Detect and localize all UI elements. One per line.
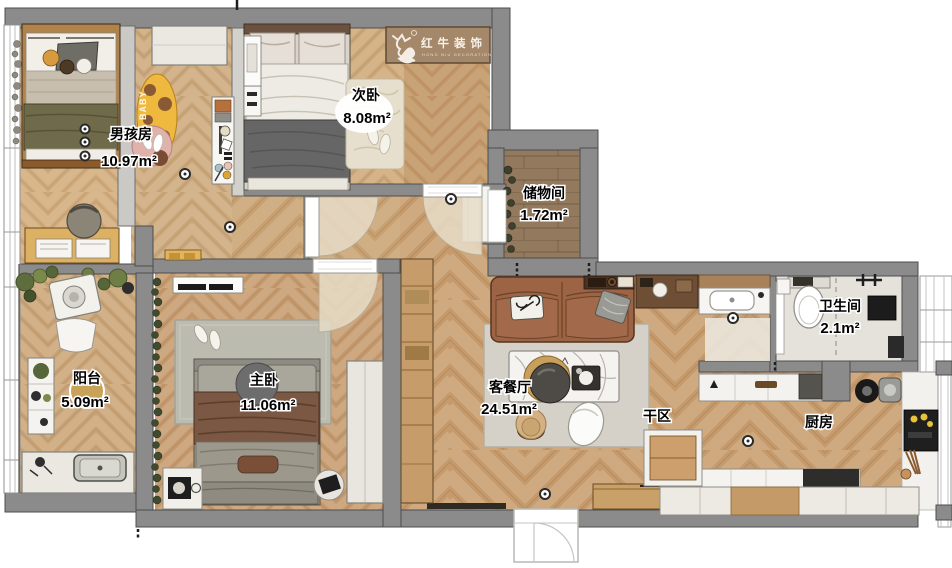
svg-text:阳台: 阳台 bbox=[73, 370, 101, 386]
svg-text:干区: 干区 bbox=[643, 408, 671, 424]
svg-text:10.97m²: 10.97m² bbox=[101, 153, 157, 170]
svg-text:2.1m²: 2.1m² bbox=[820, 320, 859, 337]
svg-text:主卧: 主卧 bbox=[250, 372, 278, 388]
svg-text:11.06m²: 11.06m² bbox=[240, 397, 295, 414]
svg-text:储物间: 储物间 bbox=[522, 185, 565, 201]
svg-text:BABY: BABY bbox=[138, 90, 148, 120]
svg-text:卫生间: 卫生间 bbox=[819, 298, 861, 314]
svg-text:厨房: 厨房 bbox=[805, 414, 833, 430]
svg-text:HONG NIU DECORATION: HONG NIU DECORATION bbox=[422, 52, 492, 57]
svg-text:1.72m²: 1.72m² bbox=[520, 207, 568, 224]
svg-text:男孩房: 男孩房 bbox=[110, 126, 152, 142]
svg-text:次卧: 次卧 bbox=[352, 87, 380, 103]
svg-text:5.09m²: 5.09m² bbox=[61, 394, 109, 411]
svg-text:8.08m²: 8.08m² bbox=[343, 110, 391, 127]
svg-text:客餐厅: 客餐厅 bbox=[488, 379, 531, 395]
svg-text:红牛装饰: 红牛装饰 bbox=[421, 36, 487, 50]
svg-text:24.51m²: 24.51m² bbox=[481, 401, 537, 418]
